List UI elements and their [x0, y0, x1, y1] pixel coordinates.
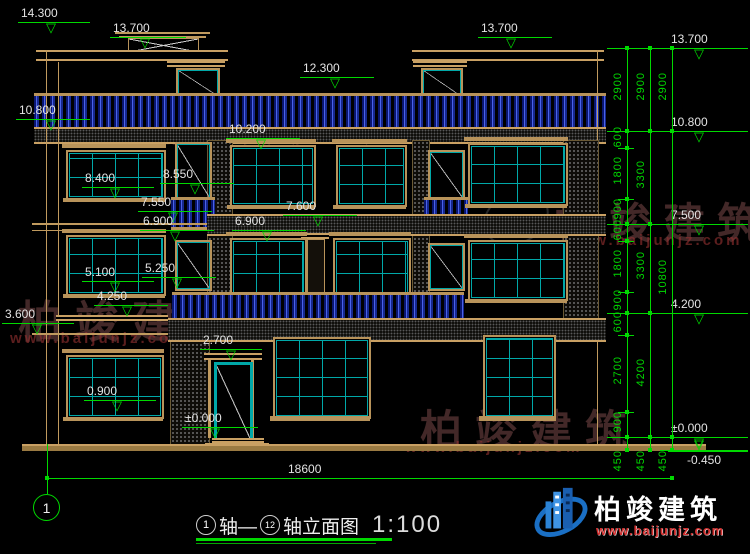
french-window-3f-stair — [428, 150, 465, 200]
roof-slab-right — [412, 50, 604, 61]
elevation-triangle-icon: ▽ — [256, 137, 266, 150]
axis-end-bubble: 12 — [260, 515, 280, 535]
dim-label: 2900 — [635, 72, 647, 100]
roof-slab-left — [36, 50, 228, 61]
elevation-drawing-canvas: 柏竣建筑 www.baijunjz.com 柏竣建筑 www.baijunjz.… — [0, 0, 750, 554]
dim-label: 3300 — [635, 251, 647, 279]
elevation-marker: 8.550▽ — [160, 167, 234, 197]
elevation-triangle-icon: ▽ — [506, 36, 516, 49]
axis-bubble-1: 1 — [33, 494, 60, 521]
logo-url: www.baijunjz.com — [596, 523, 724, 538]
bulkhead-left-cap — [167, 61, 225, 67]
window-sill — [465, 204, 567, 208]
dimension-end-dot — [45, 476, 49, 480]
elevation-triangle-icon: ▽ — [190, 182, 200, 195]
elevation-marker: 3.600▽ — [2, 307, 74, 337]
window-3f-middle-right — [336, 145, 407, 207]
window-grid — [339, 148, 404, 204]
title-underline-thin — [196, 543, 376, 544]
window-lintel — [62, 349, 164, 353]
elevation-marker: 13.700▽ — [110, 21, 186, 51]
elevation-marker: 6.900▽ — [232, 214, 306, 244]
dimension-tick-dot — [625, 290, 629, 294]
dim-label: 1800 — [612, 249, 624, 277]
dim-label: 1800 — [612, 156, 624, 184]
elevation-triangle-icon: ▽ — [226, 348, 236, 361]
window-3f-middle-left — [230, 145, 316, 207]
elevation-triangle-icon: ▽ — [210, 426, 220, 439]
logo-text: 柏竣建筑 — [594, 488, 722, 527]
dim-label: 10800 — [657, 259, 669, 295]
dim-label: 600 — [612, 219, 624, 240]
window-grid — [233, 241, 304, 293]
dimension-tick-dot — [625, 197, 629, 201]
elevation-marker: 4.250▽ — [94, 289, 168, 319]
dim-label: 2900 — [612, 72, 624, 100]
window-3f-right — [468, 143, 568, 206]
window-grid — [336, 241, 408, 293]
roof-cornice-band — [34, 127, 606, 144]
dim-label: 2700 — [612, 356, 624, 384]
window-lintel — [464, 234, 568, 238]
dim-label: 2900 — [657, 72, 669, 100]
dimension-tick-dot — [625, 448, 629, 452]
dimension-tick-dot — [625, 146, 629, 150]
dim-label: 600 — [612, 311, 624, 332]
porch-column — [307, 239, 325, 294]
bulkhead-right-cap — [413, 61, 467, 67]
window-sill — [63, 417, 163, 421]
dim-label: 4200 — [635, 358, 647, 386]
elevation-triangle-icon: ▽ — [313, 214, 323, 227]
title-name: 轴立面图 — [283, 512, 359, 539]
window-1f-middle — [273, 337, 371, 419]
elevation-triangle-icon: ▽ — [170, 229, 180, 242]
dimension-tick-dot — [625, 46, 629, 50]
elevation-triangle-icon: ▽ — [32, 322, 42, 335]
window-sill — [465, 299, 567, 303]
drawing-title: 1 轴— 12 轴立面图 1:100 — [196, 511, 442, 539]
dim-label: 900 — [612, 198, 624, 219]
window-2f-right — [468, 240, 568, 301]
elevation-triangle-icon: ▽ — [112, 399, 122, 412]
elevation-marker: 13.700▽ — [668, 32, 748, 62]
dimension-tick-dot — [648, 222, 652, 226]
elevation-marker: 2.700▽ — [200, 333, 262, 363]
dim-label: 600 — [612, 126, 624, 147]
elevation-marker: ±0.000▽ — [668, 421, 748, 451]
elevation-marker: 13.700▽ — [478, 21, 552, 51]
title-connector: 轴— — [219, 512, 257, 539]
dim-label: 450 — [635, 450, 647, 471]
window-grid — [233, 148, 313, 204]
elevation-triangle-icon: ▽ — [140, 36, 150, 49]
dimension-tick-dot — [625, 239, 629, 243]
dimension-tick-dot — [648, 129, 652, 133]
dimension-tick-dot — [648, 435, 652, 439]
elevation-triangle-icon: ▽ — [262, 229, 272, 242]
window-sill — [479, 416, 556, 421]
title-scale: 1:100 — [372, 511, 442, 539]
dimension-tick-dot — [648, 448, 652, 452]
window-lintel — [62, 144, 166, 148]
dimension-chain-line — [650, 48, 651, 450]
overall-dimension-line — [47, 478, 672, 479]
elevation-triangle-icon: ▽ — [46, 118, 56, 131]
ground-line — [22, 444, 706, 451]
elevation-triangle-icon: ▽ — [330, 76, 340, 89]
dimension-tick-dot — [670, 448, 674, 452]
axis-start-bubble: 1 — [196, 515, 216, 535]
overall-width-label: 18600 — [288, 462, 321, 476]
elevation-triangle-icon: ▽ — [122, 304, 132, 317]
elevation-marker: 4.200▽ — [668, 297, 748, 327]
elevation-marker: 0.900▽ — [84, 384, 156, 414]
window-grid — [471, 243, 565, 298]
dim-label: 3300 — [635, 160, 647, 188]
dimension-tick-dot — [670, 129, 674, 133]
dim-label: 900 — [612, 289, 624, 310]
dimension-tick-dot — [670, 435, 674, 439]
elevation-triangle-icon: ▽ — [46, 21, 56, 34]
window-grid — [471, 146, 565, 203]
elevation-marker: 6.900▽ — [140, 214, 214, 244]
dimension-tick-dot — [625, 410, 629, 414]
window-2f-middle-right — [333, 238, 411, 296]
title-underline — [196, 538, 392, 541]
window-2f-middle-left — [230, 238, 307, 296]
dimension-chain-line — [627, 48, 628, 450]
dimension-tick-dot — [625, 129, 629, 133]
dimension-tick-dot — [625, 435, 629, 439]
window-lintel — [464, 137, 568, 141]
window-1f-right — [483, 335, 556, 419]
elevation-marker: 10.800▽ — [16, 103, 90, 133]
dimension-tick-dot — [648, 311, 652, 315]
dimension-tick-dot — [625, 311, 629, 315]
elevation-marker: 12.300▽ — [300, 61, 374, 91]
elevation-marker: 14.300▽ — [18, 6, 90, 36]
elevation-marker: 10.200▽ — [226, 122, 300, 152]
elevation-marker: 5.250▽ — [142, 261, 216, 291]
french-window-2f-stair — [428, 243, 465, 291]
logo-mark-icon — [532, 482, 590, 544]
dimension-end-dot — [670, 476, 674, 480]
dim-label: 900 — [612, 411, 624, 432]
elevation-triangle-icon: ▽ — [172, 276, 182, 289]
window-lintel — [329, 232, 411, 236]
brand-logo: 柏竣建筑 www.baijunjz.com — [532, 482, 747, 550]
dimension-tick-dot — [670, 46, 674, 50]
elevation-marker: 7.500▽ — [668, 208, 748, 238]
elevation-marker: ±0.000▽ — [182, 411, 258, 441]
axis-leader-line — [47, 444, 48, 494]
window-sill — [270, 416, 370, 421]
elevation-triangle-icon: ▽ — [110, 186, 120, 199]
dim-label: 450 — [612, 450, 624, 471]
window-grid — [276, 340, 368, 416]
dimension-chain-line — [672, 48, 673, 450]
dimension-tick-dot — [625, 222, 629, 226]
window-grid — [486, 338, 553, 416]
dim-label: 450 — [657, 450, 669, 471]
dimension-tick-dot — [625, 333, 629, 337]
dimension-tick-dot — [648, 46, 652, 50]
elevation-marker: 10.800▽ — [668, 115, 748, 145]
window-lintel — [332, 139, 407, 143]
